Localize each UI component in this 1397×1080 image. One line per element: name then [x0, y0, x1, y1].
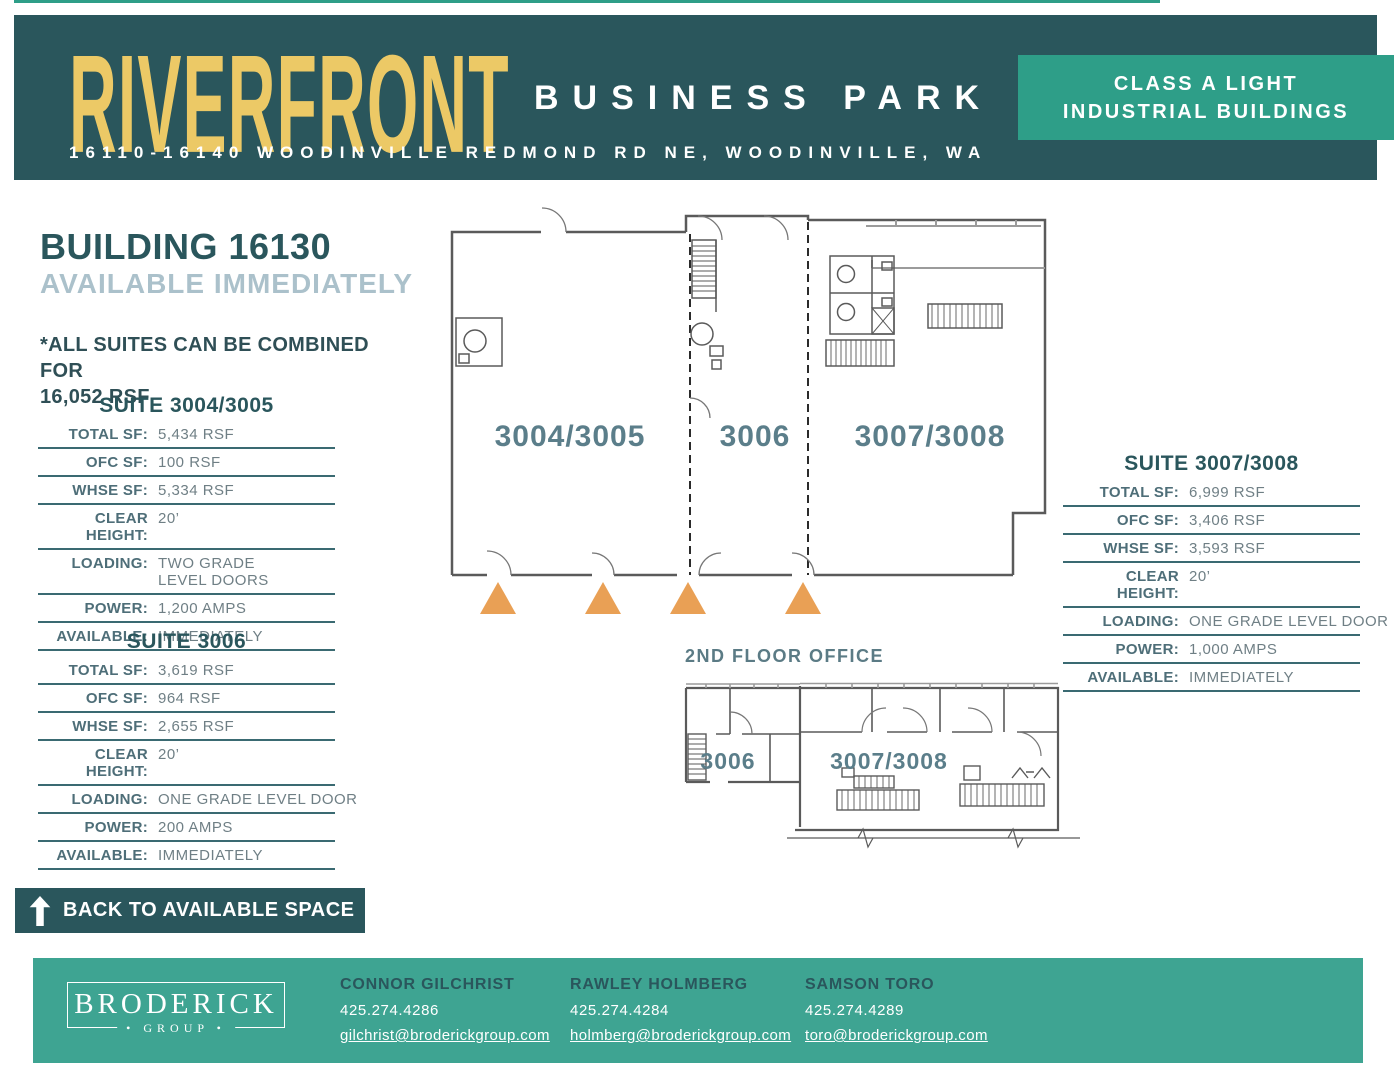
badge-line1: CLASS A LIGHT — [1114, 70, 1298, 98]
plan-label-suite-3006: 3006 — [705, 420, 805, 454]
row-value: ONE GRADE LEVEL DOOR — [158, 791, 358, 808]
contact-card: SAMSON TORO 425.274.4289 toro@broderickg… — [805, 976, 988, 1045]
main-floor-plan — [446, 202, 1056, 622]
suite-3007-3008-table: SUITE 3007/3008 TOTAL SF:6,999 RSF OFC S… — [1063, 452, 1360, 692]
table-row: CLEAR HEIGHT:20’ — [38, 505, 335, 550]
table-row: WHSE SF:5,334 RSF — [38, 477, 335, 505]
second-floor-stairs-right — [960, 766, 1050, 806]
combine-note-line1: *ALL SUITES CAN BE COMBINED FOR — [40, 334, 369, 382]
contact-phone: 425.274.4286 — [340, 1002, 550, 1019]
row-value: 1,000 AMPS — [1189, 641, 1360, 658]
row-value: IMMEDIATELY — [1189, 669, 1360, 686]
back-button-label: BACK TO AVAILABLE SPACE — [63, 899, 355, 922]
row-value: 5,434 RSF — [158, 426, 335, 443]
row-value: 3,619 RSF — [158, 662, 335, 679]
contact-phone: 425.274.4284 — [570, 1002, 791, 1019]
contact-phone: 425.274.4289 — [805, 1002, 988, 1019]
plan-label-suite-3004-3005: 3004/3005 — [480, 420, 660, 454]
row-label: CLEAR HEIGHT: — [38, 746, 158, 780]
restroom-3006 — [691, 323, 723, 369]
second-floor-label-3006: 3006 — [688, 748, 768, 775]
contact-email-link[interactable]: toro@broderickgroup.com — [805, 1027, 988, 1044]
row-label: POWER: — [38, 600, 158, 617]
row-value: ONE GRADE LEVEL DOOR — [1189, 613, 1389, 630]
row-label: WHSE SF: — [1063, 540, 1189, 557]
flyer-page: RIVERFRONT BUSINESS PARK 16110-16140 WOO… — [0, 0, 1397, 1080]
second-floor-label-3007-3008: 3007/3008 — [809, 748, 969, 775]
table-row: LOADING:TWO GRADE LEVEL DOORS — [38, 550, 335, 595]
row-value: 964 RSF — [158, 690, 335, 707]
row-label: WHSE SF: — [38, 718, 158, 735]
logo-name: BRODERICK — [68, 983, 284, 1025]
stairs-3007-3008 — [826, 340, 894, 366]
building-title: BUILDING 16130 — [40, 226, 331, 268]
table-row: TOTAL SF:5,434 RSF — [38, 421, 335, 449]
table-row: AVAILABLE:IMMEDIATELY — [1063, 664, 1360, 692]
row-label: LOADING: — [38, 555, 158, 589]
row-label: TOTAL SF: — [38, 426, 158, 443]
brand-subtitle: BUSINESS PARK — [534, 79, 993, 118]
row-value: IMMEDIATELY — [158, 847, 335, 864]
suite-3004-3005-table: SUITE 3004/3005 TOTAL SF:5,434 RSF OFC S… — [38, 394, 335, 651]
contact-name: CONNOR GILCHRIST — [340, 976, 550, 994]
logo-sub: • GROUP • — [117, 1021, 235, 1036]
contact-card: RAWLEY HOLMBERG 425.274.4284 holmberg@br… — [570, 976, 791, 1045]
contact-email-link[interactable]: holmberg@broderickgroup.com — [570, 1027, 791, 1044]
stairs-upper-right — [928, 304, 1002, 328]
grade-door-markers — [480, 582, 821, 614]
table-row: LOADING:ONE GRADE LEVEL DOOR — [38, 786, 335, 814]
row-value: 2,655 RSF — [158, 718, 335, 735]
table-row: OFC SF:100 RSF — [38, 449, 335, 477]
table-row: OFC SF:3,406 RSF — [1063, 507, 1360, 535]
class-a-badge: CLASS A LIGHT INDUSTRIAL BUILDINGS — [1018, 55, 1394, 140]
row-label: LOADING: — [1063, 613, 1189, 630]
row-label: POWER: — [38, 819, 158, 836]
availability-subtitle: AVAILABLE IMMEDIATELY — [40, 268, 413, 300]
back-to-available-space-button[interactable]: BACK TO AVAILABLE SPACE — [15, 888, 365, 933]
row-value: 100 RSF — [158, 454, 335, 471]
suite-table-title: SUITE 3004/3005 — [38, 394, 335, 418]
table-row: AVAILABLE:IMMEDIATELY — [38, 842, 335, 870]
row-value: 3,406 RSF — [1189, 512, 1360, 529]
table-row: OFC SF:964 RSF — [38, 685, 335, 713]
contact-card: CONNOR GILCHRIST 425.274.4286 gilchrist@… — [340, 976, 550, 1045]
row-label: OFC SF: — [1063, 512, 1189, 529]
table-row: CLEAR HEIGHT:20’ — [38, 741, 335, 786]
table-row: WHSE SF:3,593 RSF — [1063, 535, 1360, 563]
contact-email-link[interactable]: gilchrist@broderickgroup.com — [340, 1027, 550, 1044]
row-label: OFC SF: — [38, 454, 158, 471]
second-floor-title: 2ND FLOOR OFFICE — [685, 646, 884, 667]
break-line — [787, 829, 1080, 847]
table-row: POWER:1,200 AMPS — [38, 595, 335, 623]
row-label: TOTAL SF: — [38, 662, 158, 679]
row-value: 1,200 AMPS — [158, 600, 335, 617]
row-label: CLEAR HEIGHT: — [38, 510, 158, 544]
contact-name: RAWLEY HOLMBERG — [570, 976, 791, 994]
table-row: TOTAL SF:3,619 RSF — [38, 657, 335, 685]
row-label: CLEAR HEIGHT: — [1063, 568, 1189, 602]
table-row: POWER:200 AMPS — [38, 814, 335, 842]
row-value: TWO GRADE LEVEL DOORS — [158, 555, 286, 589]
row-value: 6,999 RSF — [1189, 484, 1360, 501]
row-label: AVAILABLE: — [38, 847, 158, 864]
restroom-left-suite — [456, 318, 502, 366]
row-value: 20’ — [1189, 568, 1360, 602]
up-arrow-icon — [29, 896, 51, 926]
row-value: 20’ — [158, 510, 335, 544]
suite-table-title: SUITE 3006 — [38, 630, 335, 654]
row-label: OFC SF: — [38, 690, 158, 707]
row-value: 3,593 RSF — [1189, 540, 1360, 557]
badge-line2: INDUSTRIAL BUILDINGS — [1063, 98, 1349, 126]
suite-table-title: SUITE 3007/3008 — [1063, 452, 1360, 476]
top-accent-strip — [14, 0, 1160, 3]
suite-3006-table: SUITE 3006 TOTAL SF:3,619 RSF OFC SF:964… — [38, 630, 335, 870]
header-banner: RIVERFRONT BUSINESS PARK 16110-16140 WOO… — [14, 15, 1377, 180]
contact-name: SAMSON TORO — [805, 976, 988, 994]
plan-label-suite-3007-3008: 3007/3008 — [840, 420, 1020, 454]
row-label: POWER: — [1063, 641, 1189, 658]
row-value: 5,334 RSF — [158, 482, 335, 499]
row-value: 20’ — [158, 746, 335, 780]
broderick-group-logo: BRODERICK • GROUP • — [67, 982, 285, 1028]
footer: BRODERICK • GROUP • CONNOR GILCHRIST 425… — [33, 958, 1363, 1063]
row-label: WHSE SF: — [38, 482, 158, 499]
row-label: TOTAL SF: — [1063, 484, 1189, 501]
table-row: POWER:1,000 AMPS — [1063, 636, 1360, 664]
row-value: 200 AMPS — [158, 819, 335, 836]
table-row: LOADING:ONE GRADE LEVEL DOOR — [1063, 608, 1360, 636]
table-row: TOTAL SF:6,999 RSF — [1063, 479, 1360, 507]
row-label: LOADING: — [38, 791, 158, 808]
stairs-3006 — [692, 240, 716, 312]
property-address: 16110-16140 WOODINVILLE REDMOND RD NE, W… — [69, 143, 987, 163]
table-row: CLEAR HEIGHT:20’ — [1063, 563, 1360, 608]
table-row: WHSE SF:2,655 RSF — [38, 713, 335, 741]
